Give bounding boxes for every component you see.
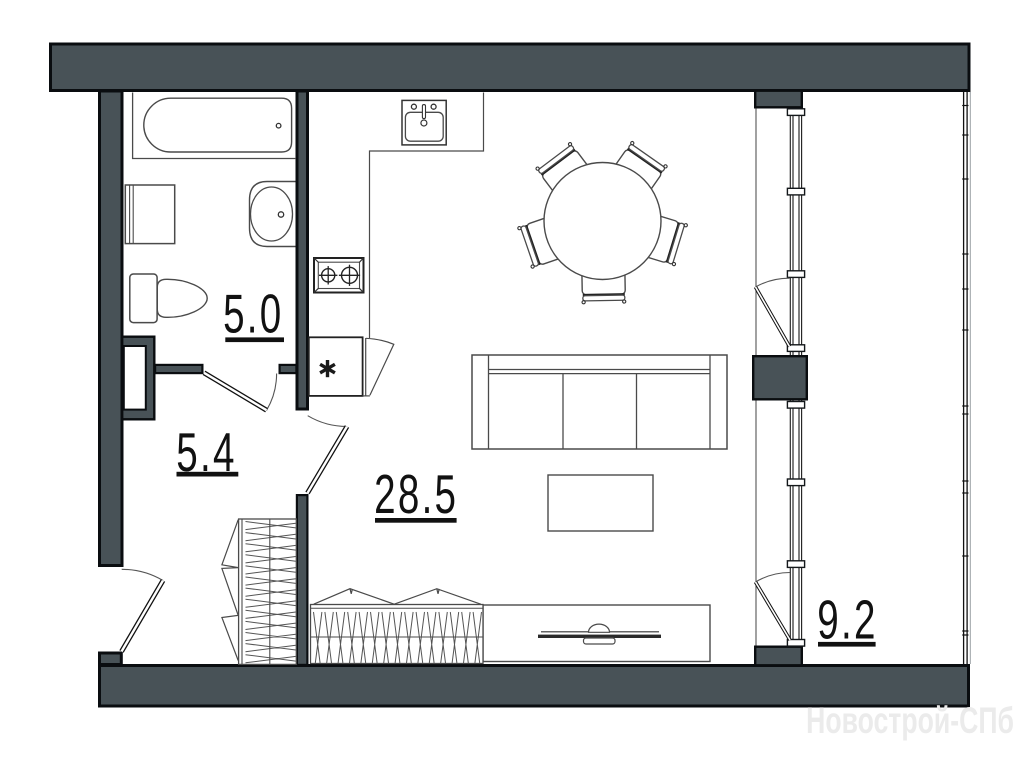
svg-text:28.5: 28.5 bbox=[374, 465, 458, 526]
svg-text:Новострой-СПб: Новострой-СПб bbox=[806, 700, 1014, 741]
svg-text:5.0: 5.0 bbox=[223, 284, 283, 345]
